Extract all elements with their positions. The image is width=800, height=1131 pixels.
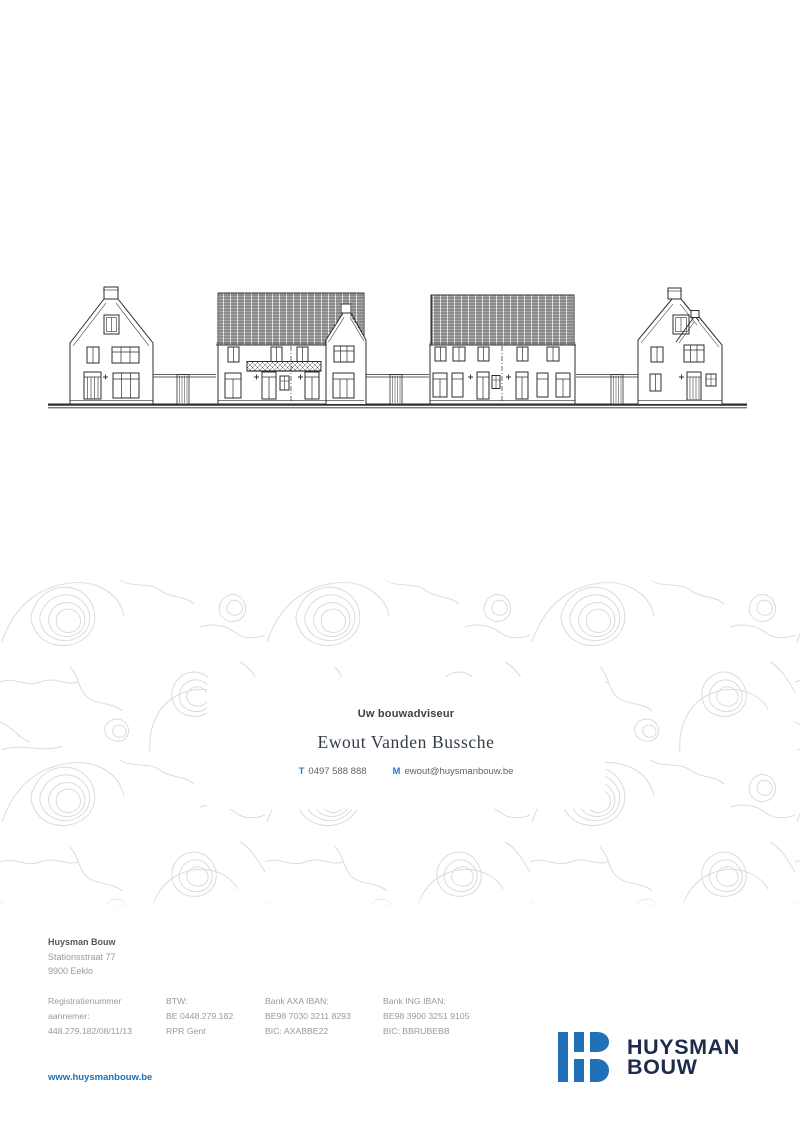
- footer-text: BIC: AXABBE22: [265, 1024, 351, 1039]
- footer-text: BE98 3900 3251 9105: [383, 1009, 469, 1024]
- document-page: Uw bouwadviseur Ewout Vanden Bussche T04…: [0, 0, 800, 1131]
- advisor-card: Uw bouwadviseur Ewout Vanden Bussche T04…: [207, 677, 605, 809]
- huysman-bouw-logo: HUYSMAN BOUW: [558, 1032, 740, 1082]
- house-right: [638, 288, 722, 404]
- elevation-drawing: [0, 275, 800, 415]
- email-address[interactable]: ewout@huysmanbouw.be: [404, 766, 513, 777]
- footer-col-bank-axa: Bank AXA IBAN: BE98 7030 3211 8293 BIC: …: [265, 994, 351, 1039]
- ground-line: [48, 405, 747, 408]
- footer-col-btw: BTW: BE 0448.279.182 RPR Gent: [166, 994, 233, 1039]
- garden-wall-3: [576, 375, 638, 405]
- building-center-left: [216, 293, 366, 404]
- logo-line2: BOUW: [627, 1057, 740, 1078]
- footer-text: Bank ING IBAN:: [383, 994, 469, 1009]
- footer-text: Bank AXA IBAN:: [265, 994, 351, 1009]
- footer-text: BTW:: [166, 994, 233, 1009]
- footer-address-block: Huysman Bouw Stationsstraat 77 9900 Eekl…: [48, 935, 116, 979]
- footer-text: Registratienummer: [48, 994, 132, 1009]
- house-left: [70, 287, 153, 404]
- logo-wordmark: HUYSMAN BOUW: [627, 1037, 740, 1078]
- footer-text: BE 0448.279.182: [166, 1009, 233, 1024]
- logo-line1: HUYSMAN: [627, 1037, 740, 1058]
- garden-wall-2: [366, 375, 429, 405]
- advisor-name: Ewout Vanden Bussche: [207, 732, 605, 753]
- phone-label: T: [299, 766, 305, 777]
- building-center-right: [429, 295, 576, 404]
- advisor-contact-line: T0497 588 888Mewout@huysmanbouw.be: [207, 766, 605, 777]
- website-link[interactable]: www.huysmanbouw.be: [48, 1072, 152, 1083]
- footer-text: 448.279.182/08/11/13: [48, 1024, 132, 1039]
- footer-company-name: Huysman Bouw: [48, 935, 116, 950]
- footer-text: RPR Gent: [166, 1024, 233, 1039]
- footer-city: 9900 Eeklo: [48, 964, 116, 979]
- footer-text: aannemer:: [48, 1009, 132, 1024]
- footer-col-registration: Registratienummer aannemer: 448.279.182/…: [48, 994, 132, 1039]
- email-label: M: [393, 766, 401, 777]
- garden-wall-1: [153, 375, 216, 405]
- footer-text: BE98 7030 3211 8293: [265, 1009, 351, 1024]
- footer-street: Stationsstraat 77: [48, 950, 116, 965]
- advisor-card-heading: Uw bouwadviseur: [207, 708, 605, 720]
- footer-text: BIC: BBRUBEBB: [383, 1024, 469, 1039]
- phone-number: 0497 588 888: [308, 766, 366, 777]
- huysman-bouw-logo-icon: [558, 1032, 610, 1082]
- footer-col-bank-ing: Bank ING IBAN: BE98 3900 3251 9105 BIC: …: [383, 994, 469, 1039]
